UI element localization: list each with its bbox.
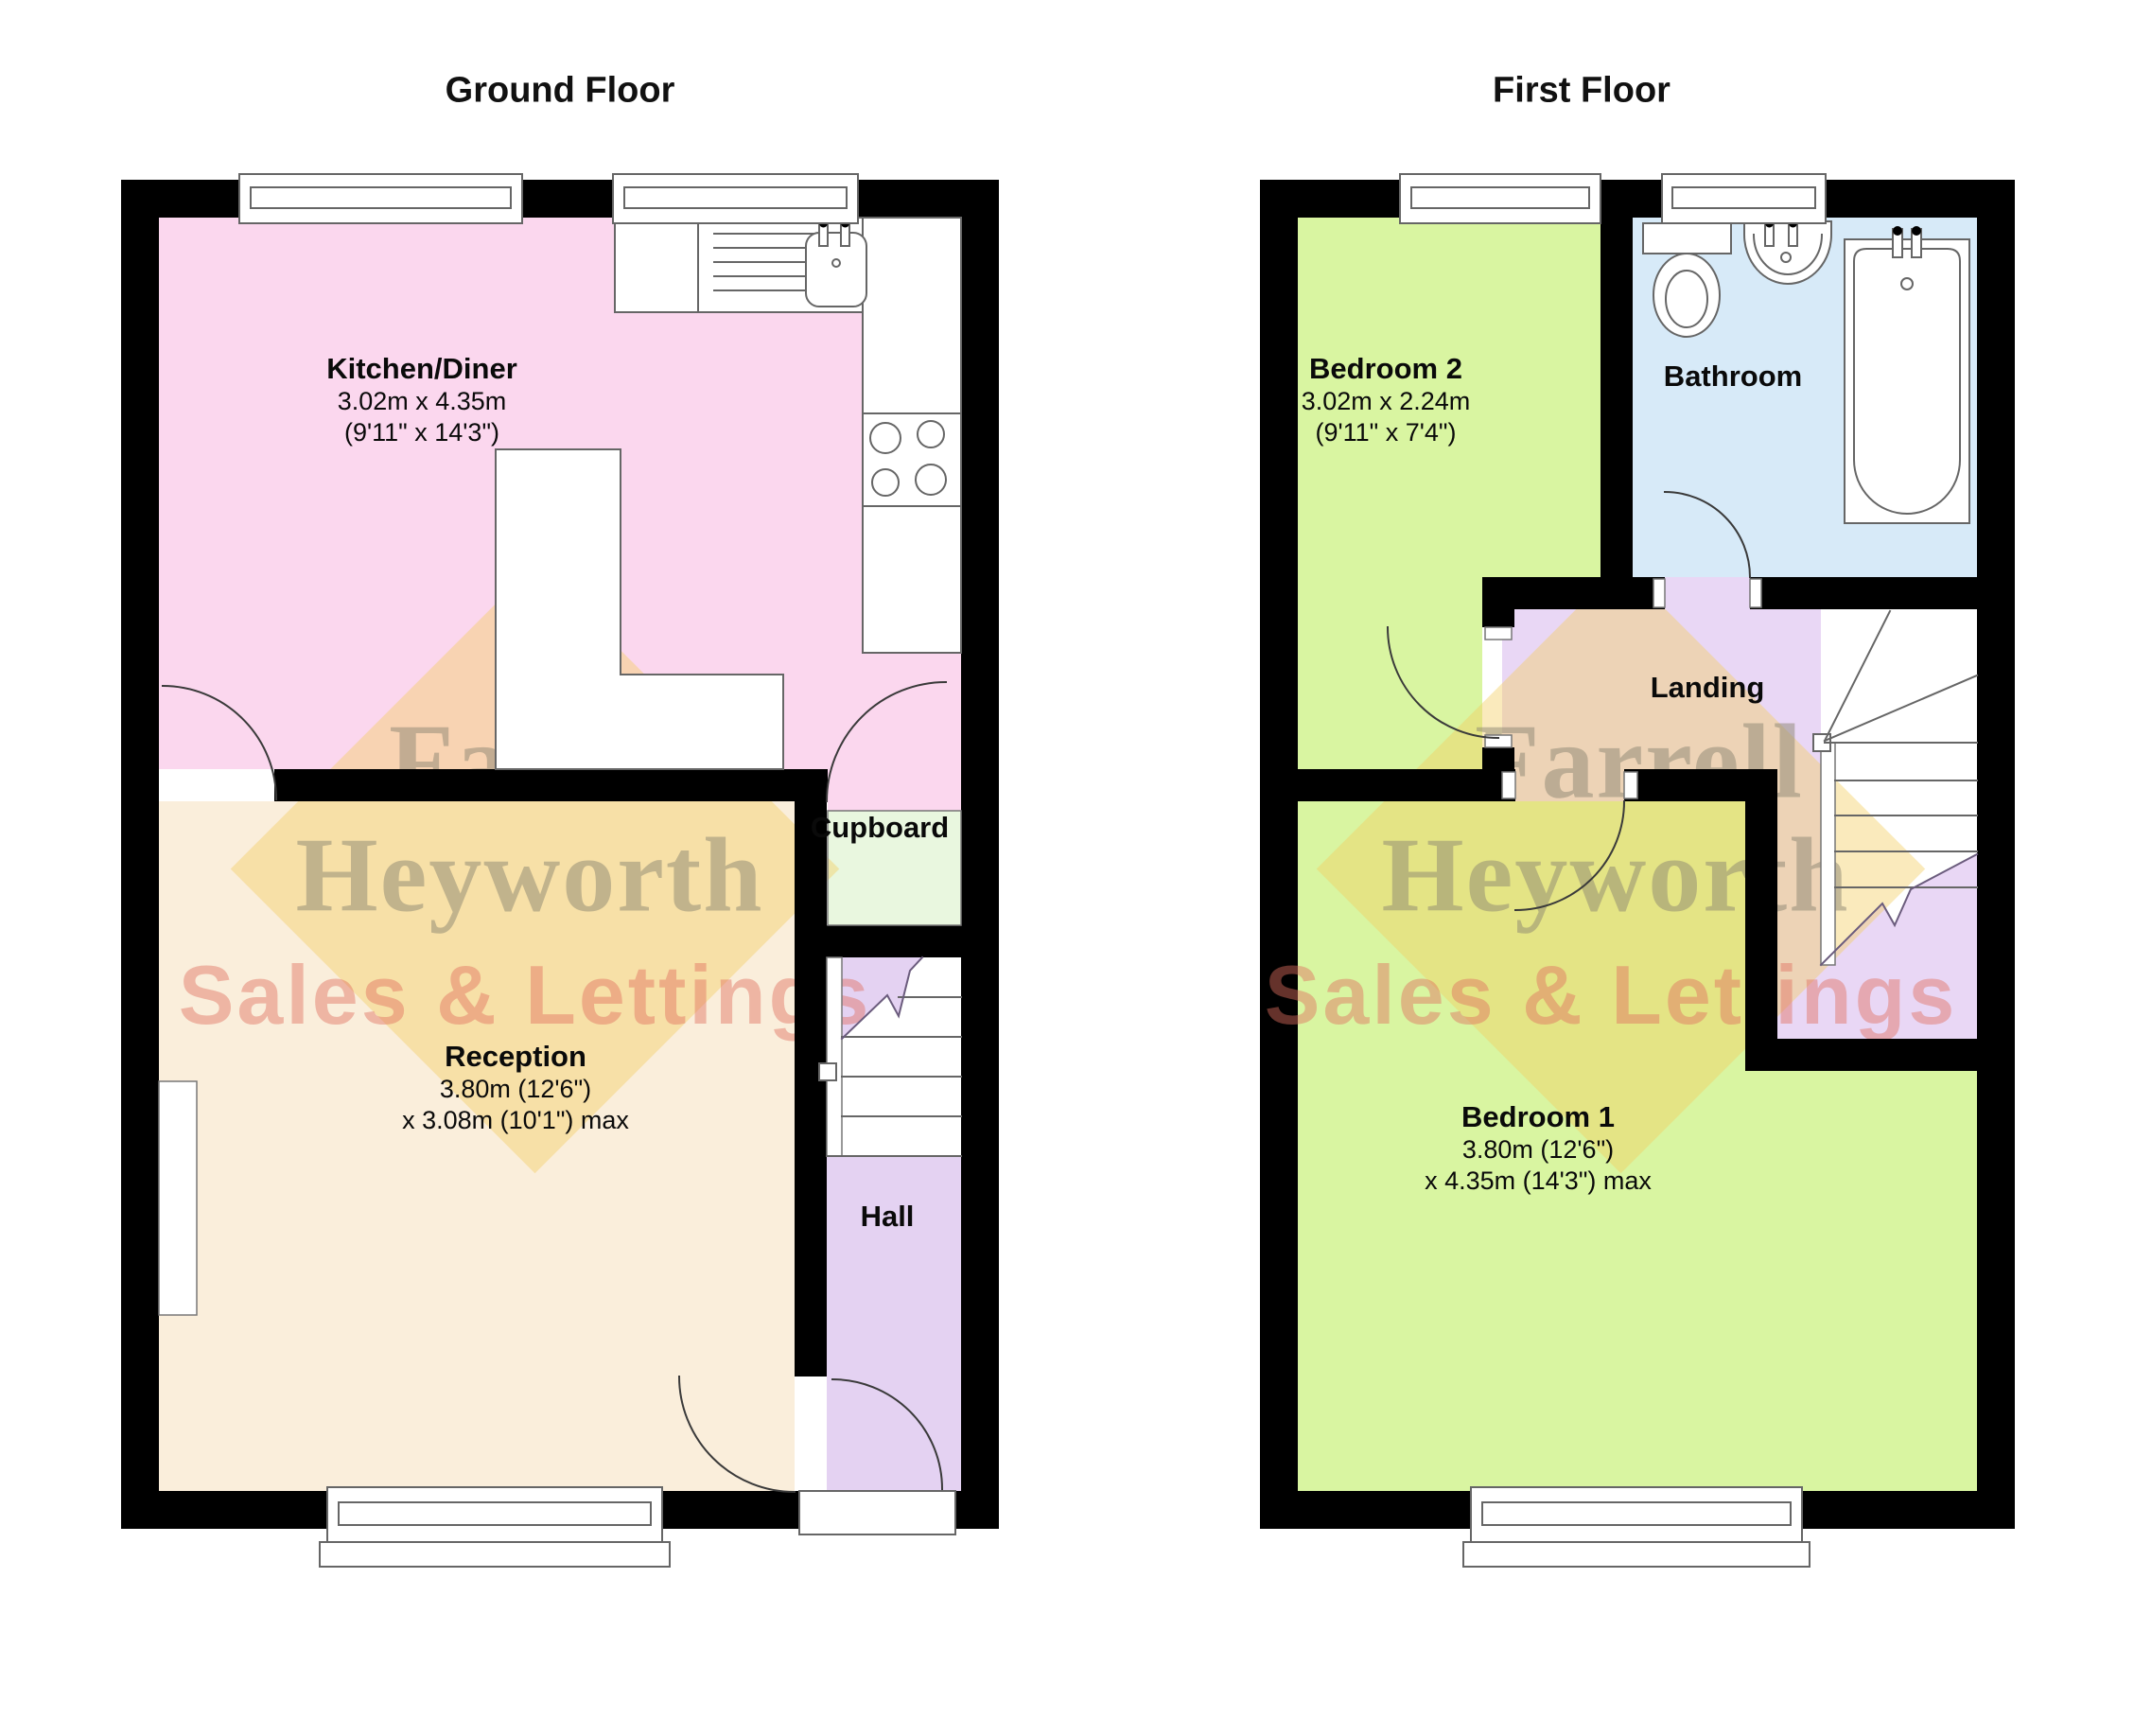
room-dim-metric: 3.80m (12'6") [1425,1134,1652,1166]
kitchen-label: Kitchen/Diner 3.02m x 4.35m (9'11" x 14'… [326,352,517,448]
room-name: Cupboard [811,811,949,845]
room-dim-imperial: (9'11" x 7'4") [1302,417,1471,448]
room-name: Bedroom 2 [1302,352,1471,386]
floorplan-page: Farrell Heyworth Sales & Lettings Farrel… [0,0,2134,1736]
room-dim-imperial: (9'11" x 14'3") [326,417,517,448]
bathroom-label: Bathroom [1664,359,1802,394]
room-name: Landing [1651,671,1765,705]
room-dim-imperial: x 4.35m (14'3") max [1425,1166,1652,1197]
room-name: Kitchen/Diner [326,352,517,386]
hall-label: Hall [861,1200,915,1234]
ground-floor-title: Ground Floor [446,71,675,112]
room-name: Bedroom 1 [1425,1100,1652,1134]
room-dim-metric: 3.80m (12'6") [402,1074,629,1105]
room-name: Hall [861,1200,915,1234]
room-name: Bathroom [1664,359,1802,394]
first-floor-title: First Floor [1493,71,1670,112]
bedroom1-label: Bedroom 1 3.80m (12'6") x 4.35m (14'3") … [1425,1100,1652,1197]
bedroom2-label: Bedroom 2 3.02m x 2.24m (9'11" x 7'4") [1302,352,1471,448]
cupboard-label: Cupboard [811,811,949,845]
landing-label: Landing [1651,671,1765,705]
room-dim-imperial: x 3.08m (10'1") max [402,1105,629,1136]
room-name: Reception [402,1040,629,1074]
label-layer: Ground Floor First Floor Kitchen/Diner 3… [0,0,2134,1736]
reception-label: Reception 3.80m (12'6") x 3.08m (10'1") … [402,1040,629,1136]
room-dim-metric: 3.02m x 4.35m [326,386,517,417]
room-dim-metric: 3.02m x 2.24m [1302,386,1471,417]
